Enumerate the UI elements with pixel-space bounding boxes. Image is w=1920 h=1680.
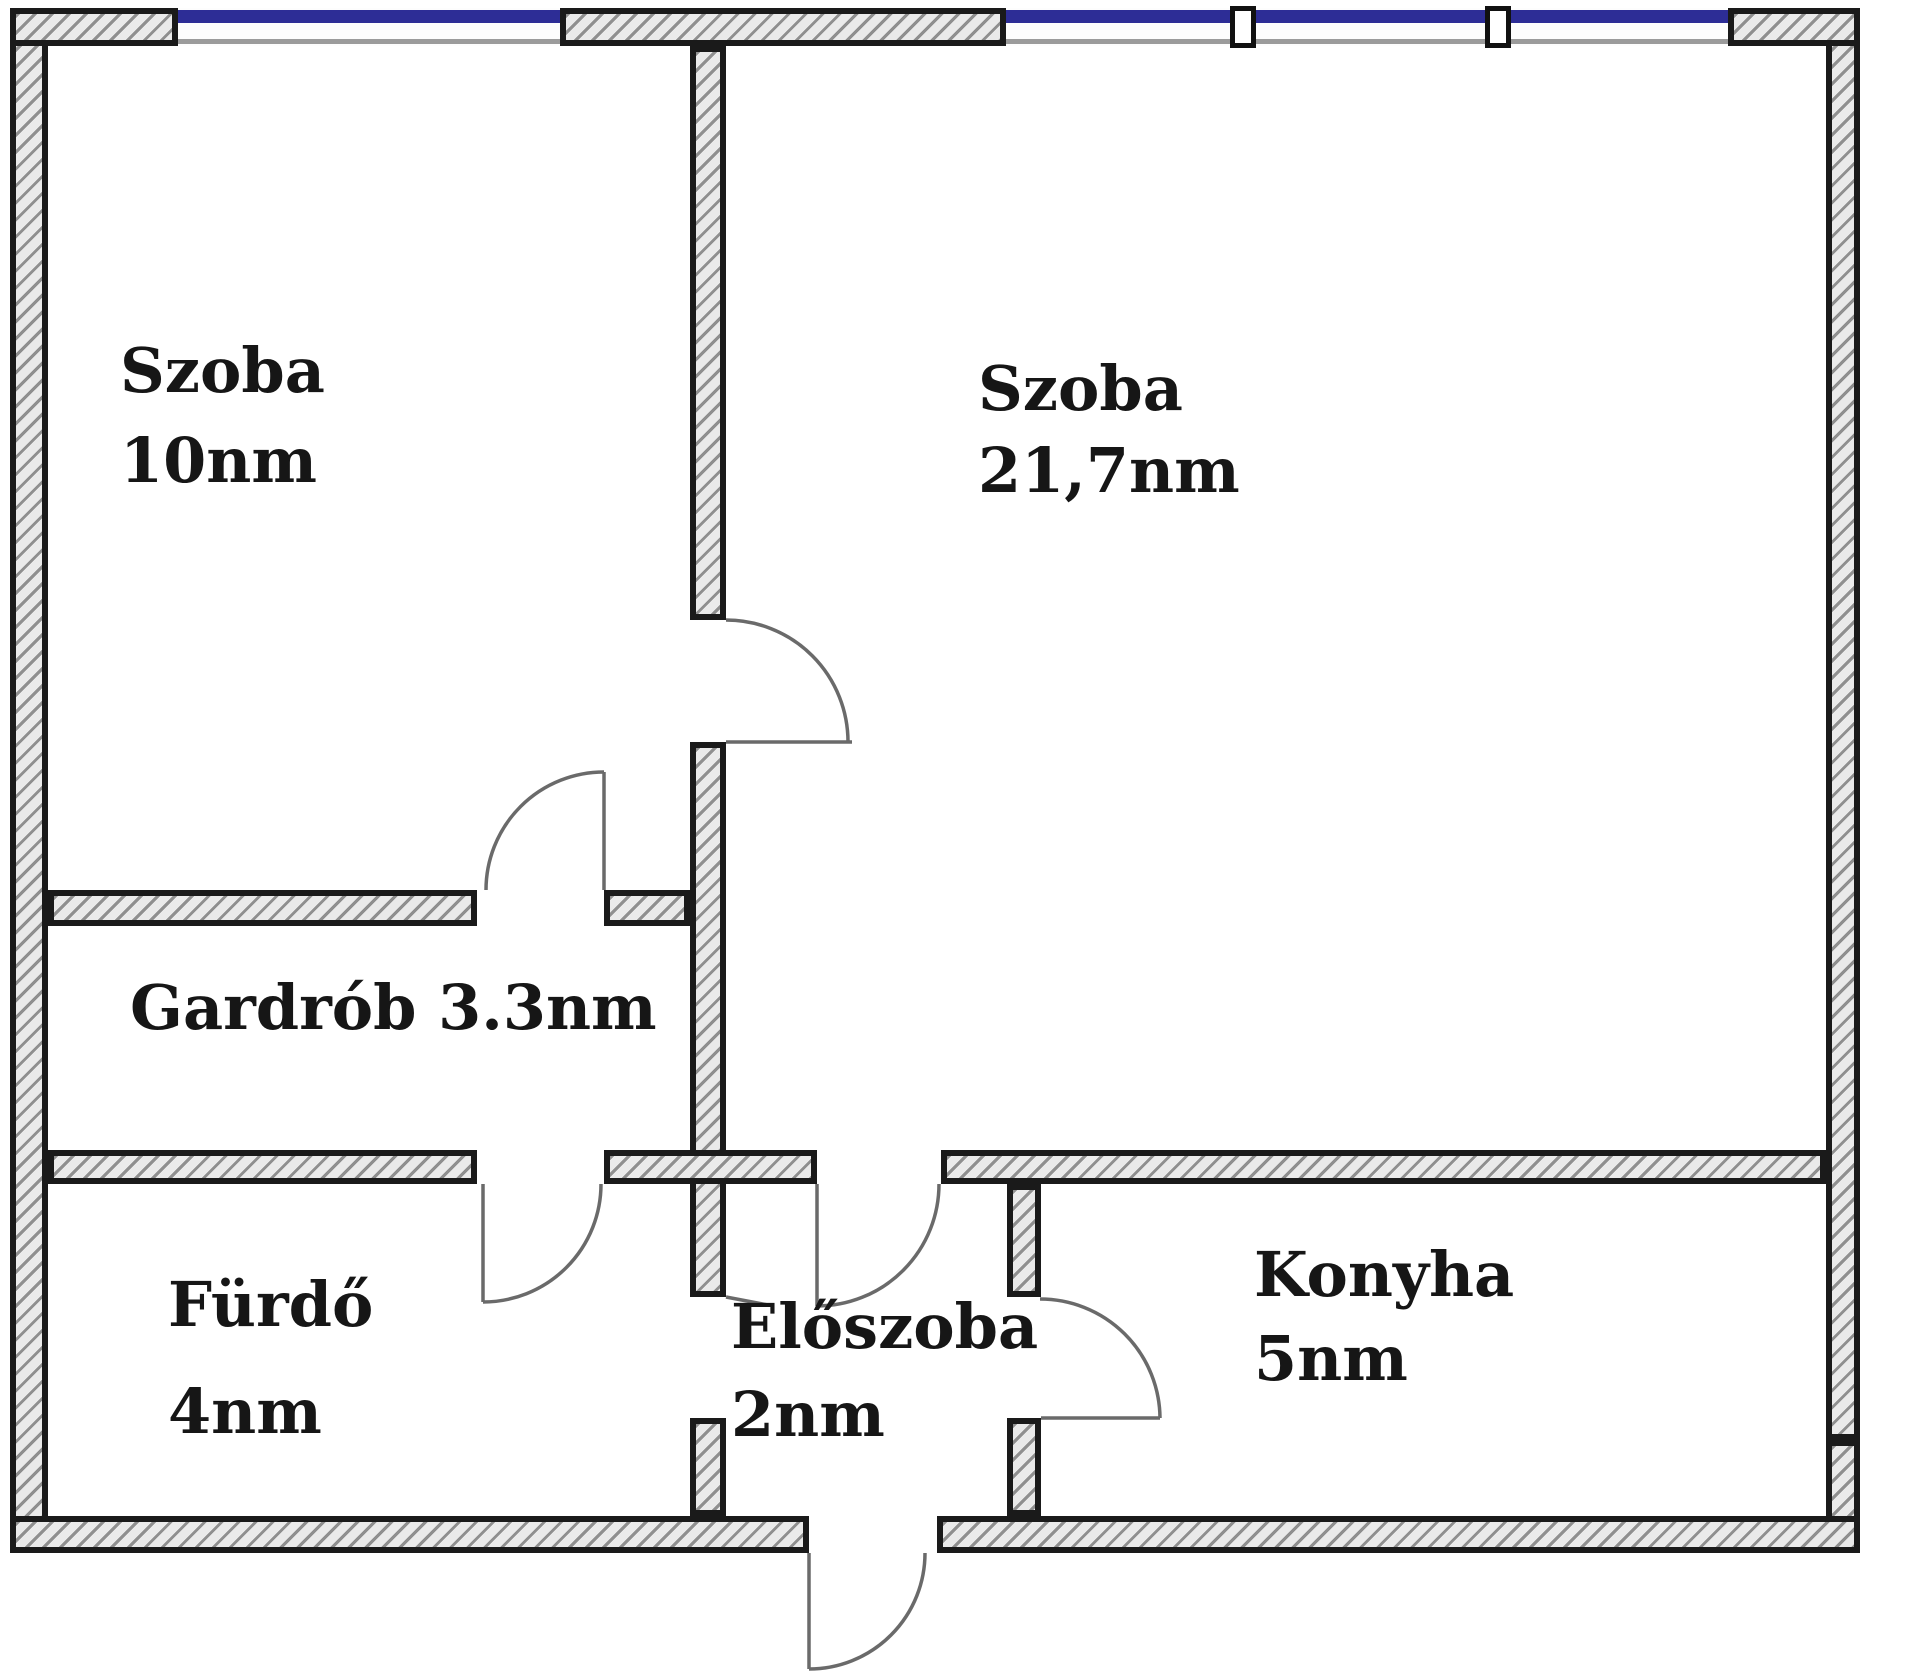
door-arc-szoba10-gardrob — [486, 772, 604, 890]
door-arc-eloszoba-konyha — [1040, 1299, 1160, 1418]
room-name: Konyha — [1254, 1242, 1514, 1308]
room-name: Szoba — [120, 338, 325, 404]
room-name: Szoba — [978, 356, 1240, 422]
room-label-szoba-21: Szoba 21,7nm — [978, 356, 1240, 504]
room-area: 10nm — [120, 428, 325, 494]
door-arc-szoba-divider — [726, 620, 848, 742]
room-label-furdo: Fürdő 4nm — [168, 1272, 373, 1445]
room-name: Gardrób — [130, 971, 417, 1044]
room-area: 3.3nm — [438, 971, 657, 1044]
floor-plan: Szoba 10nm Szoba 21,7nm Gardrób 3.3nm Fü… — [0, 0, 1920, 1680]
door-arc-entrance — [809, 1553, 925, 1669]
room-name: Előszoba — [731, 1294, 1038, 1360]
room-name: Fürdő — [168, 1272, 373, 1338]
room-label-eloszoba: Előszoba 2nm — [731, 1294, 1038, 1448]
door-arc-gardrob-furdo — [483, 1184, 601, 1302]
room-label-szoba-10: Szoba 10nm — [120, 338, 325, 494]
room-area: 4nm — [168, 1379, 373, 1445]
room-label-konyha: Konyha 5nm — [1254, 1242, 1514, 1392]
room-area: 21,7nm — [978, 438, 1240, 504]
door-arc-szoba21-eloszoba — [817, 1184, 939, 1306]
room-label-gardrob: Gardrób 3.3nm — [130, 975, 657, 1041]
room-area: 2nm — [731, 1382, 1038, 1448]
room-area: 5nm — [1254, 1326, 1514, 1392]
